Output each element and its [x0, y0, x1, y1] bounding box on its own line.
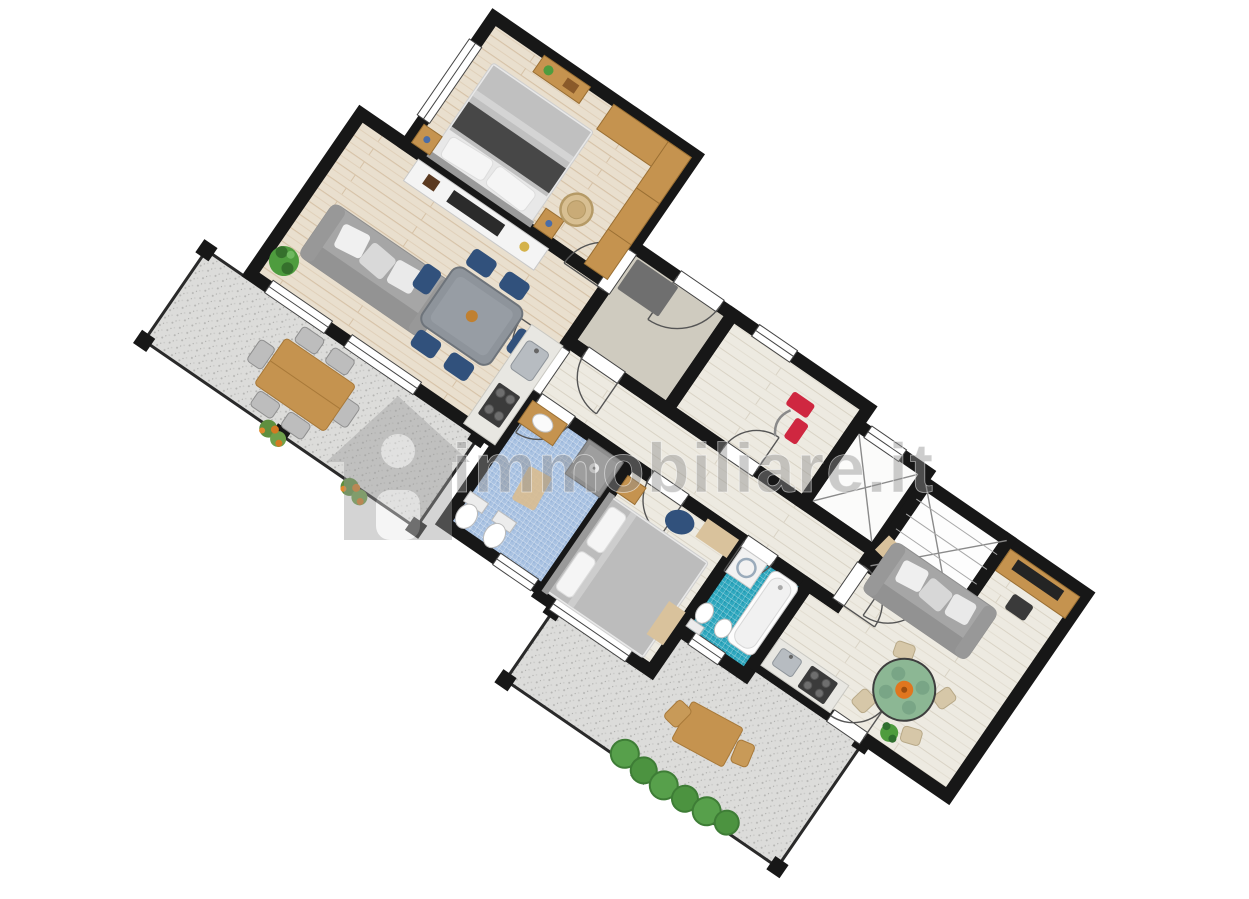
- floor-plan-canvas: immobiliare.it: [0, 0, 1249, 899]
- floor-plan-page: immobiliare.it: [0, 0, 1249, 899]
- watermark-text: immobiliare.it: [452, 429, 935, 507]
